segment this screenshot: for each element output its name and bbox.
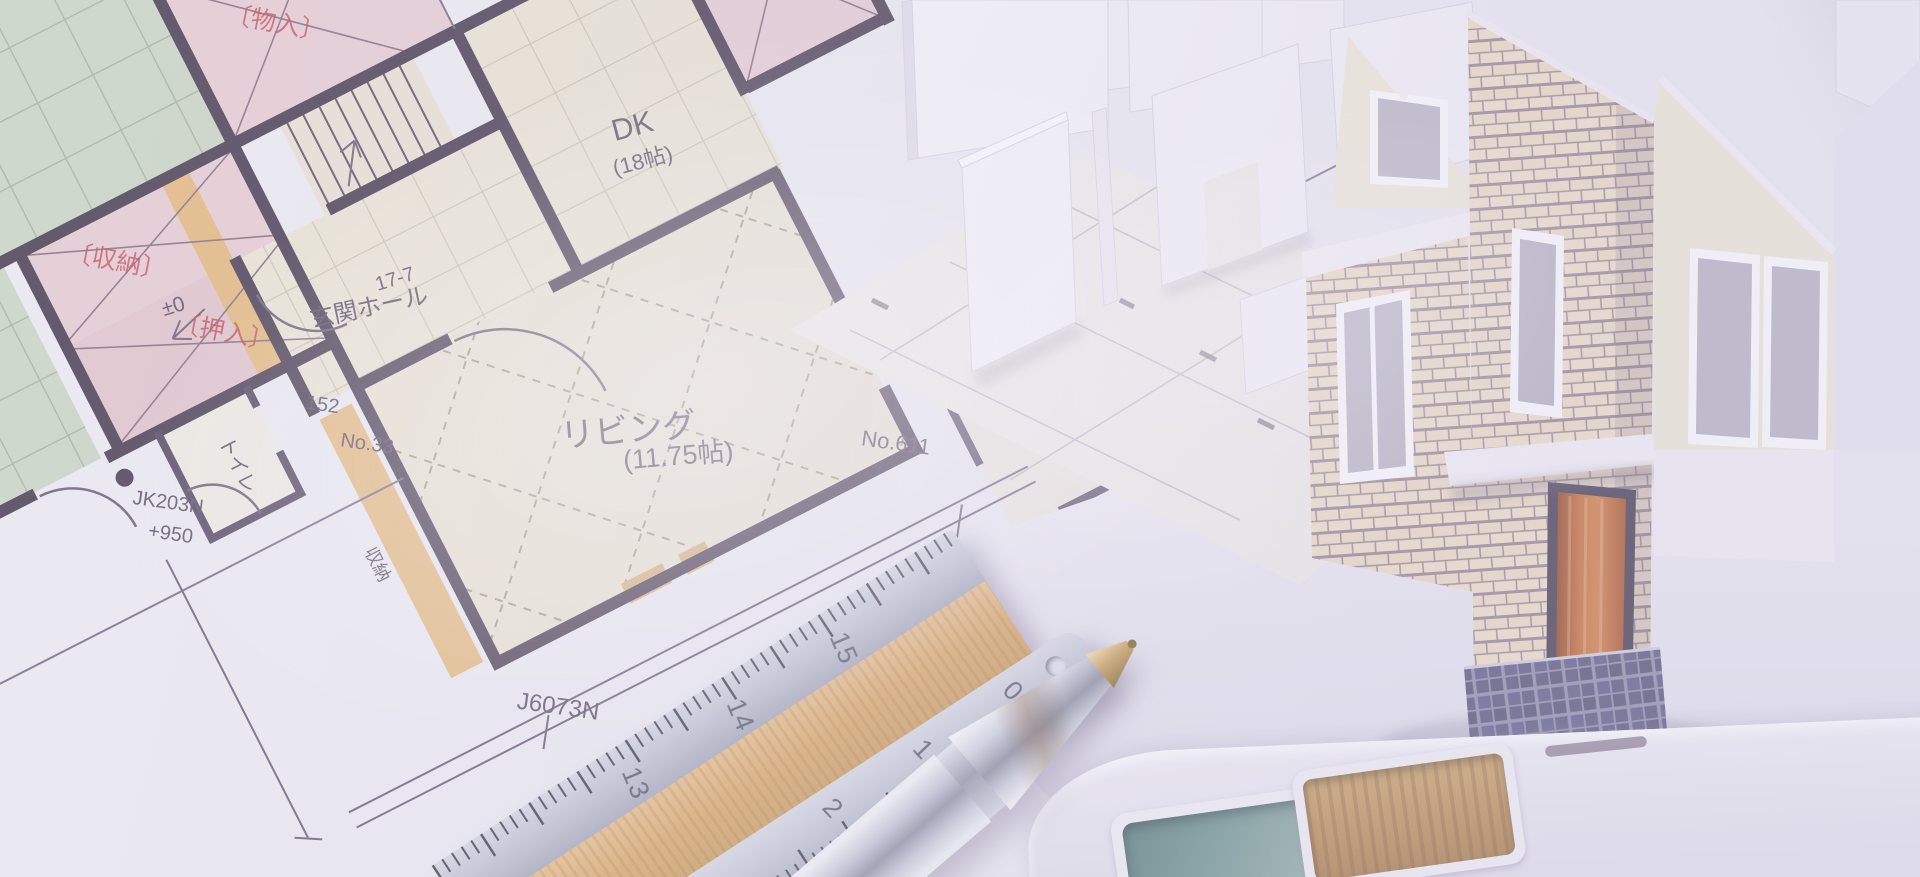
window-right-a — [1696, 258, 1752, 438]
house-back-wall — [1834, 60, 1920, 450]
architectural-planning-photo: リビング (11.75帖) DK (18帖) 洗面所 玄関ホール トイレ 収納 … — [0, 0, 1920, 877]
device-wood-panel — [1302, 752, 1516, 877]
window-right-b — [1770, 266, 1820, 440]
house-base-wall — [1654, 450, 1834, 562]
